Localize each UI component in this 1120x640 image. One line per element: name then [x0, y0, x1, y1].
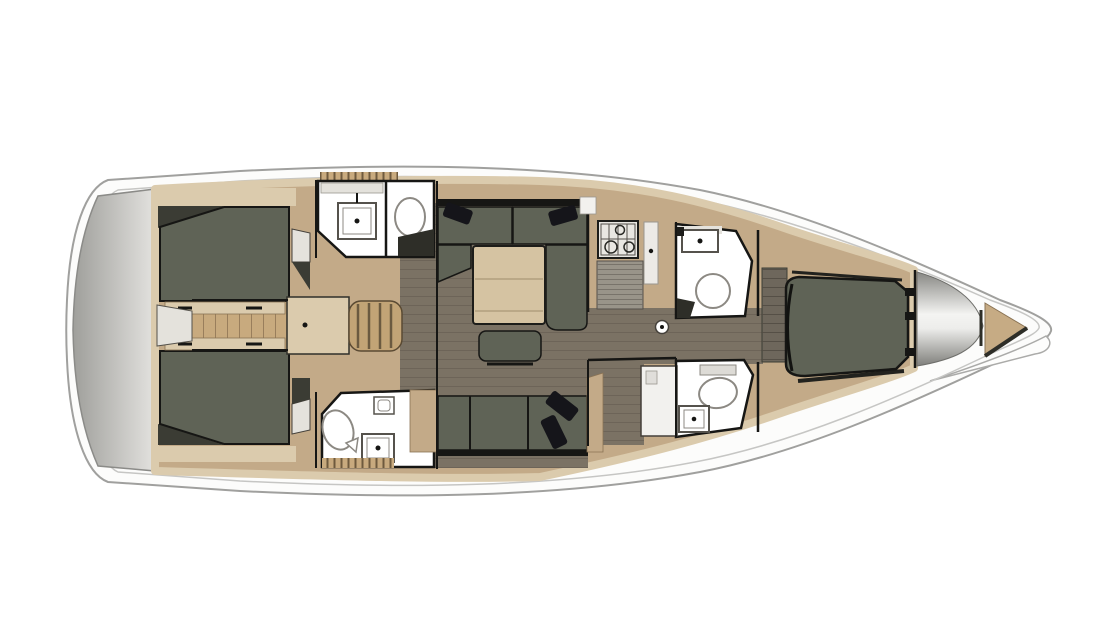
island-berth — [786, 277, 908, 376]
companionway — [287, 297, 402, 354]
mast-post — [656, 321, 669, 334]
wardrobe-door — [292, 399, 310, 434]
mast-center — [660, 325, 664, 329]
settee-back-starboard — [437, 450, 588, 456]
settee-armrest-left — [410, 390, 438, 452]
aft-head-port — [318, 172, 434, 257]
double-berth — [160, 351, 289, 444]
midship-seat — [157, 305, 192, 346]
salon-stool — [479, 331, 541, 361]
transom-platform — [73, 189, 155, 471]
settee-end-table — [587, 373, 603, 452]
sink-drain — [376, 446, 381, 451]
dresser-drawers — [762, 268, 787, 362]
cistern — [700, 365, 736, 375]
landing-platform — [287, 297, 349, 354]
teak-grating — [322, 458, 394, 468]
shower-basin — [696, 274, 730, 308]
aft-cabin-port — [156, 188, 310, 314]
aft-cabin-starboard — [156, 338, 310, 462]
floor-latch — [303, 323, 308, 328]
sink-drain — [698, 239, 703, 244]
settee-back-port — [437, 199, 588, 206]
wardrobe-door — [292, 229, 310, 262]
tap-block — [676, 227, 684, 236]
salon-table — [473, 246, 545, 324]
toilet-bowl — [395, 198, 425, 236]
locker-knob — [649, 249, 653, 253]
deck-plan-canvas — [0, 0, 1120, 640]
locker-trim — [156, 188, 296, 206]
double-berth — [160, 207, 289, 301]
sink-drain — [355, 219, 360, 224]
counter-white — [580, 197, 596, 214]
forward-head-starboard — [676, 360, 753, 437]
u-settee-bench-right — [546, 245, 587, 330]
yacht-deck-plan — [0, 0, 1120, 640]
desk-detail — [646, 371, 657, 384]
vanity-counter — [321, 183, 383, 193]
forward-head-port — [676, 224, 752, 318]
locker-trim — [156, 446, 296, 462]
sink-drain — [692, 417, 697, 422]
louver-slats — [597, 261, 643, 309]
